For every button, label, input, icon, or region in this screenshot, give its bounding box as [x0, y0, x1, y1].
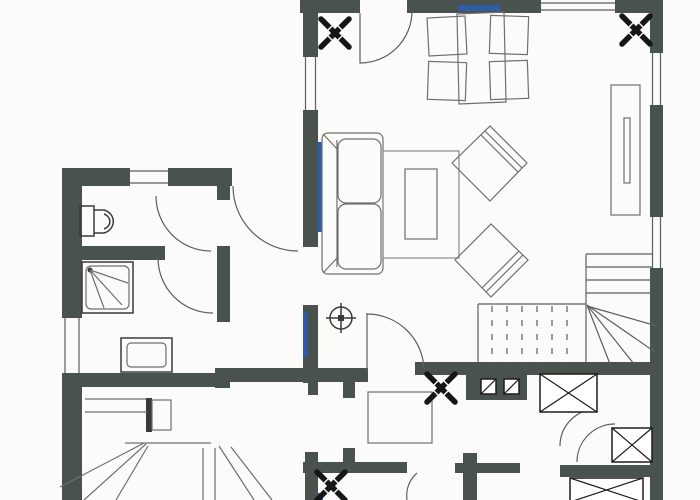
shower: [82, 262, 133, 313]
kitchen-door-arc: [560, 409, 597, 446]
entrance-door-arc: [233, 186, 298, 251]
wc-door-arc: [156, 196, 211, 251]
wall: [560, 465, 663, 477]
nightstand: [152, 400, 171, 430]
dining-set: [427, 12, 529, 104]
radiator-living-room: [318, 142, 323, 232]
small-x-box: [612, 428, 652, 462]
bathroom-door-arc: [158, 258, 213, 313]
radiator-hallway: [303, 312, 308, 358]
window-frame: [653, 53, 661, 105]
bedroom: [60, 398, 272, 500]
dining-chair: [427, 16, 467, 56]
wall: [82, 373, 217, 387]
wall: [217, 368, 368, 382]
window-frame: [306, 57, 316, 110]
bottom-right-cabinet: [570, 478, 643, 500]
staircase: [478, 254, 657, 364]
sofa: [322, 133, 383, 274]
rug-and-table: [383, 151, 459, 258]
dining-table: [457, 12, 506, 104]
wall: [303, 110, 318, 247]
bathtub: [121, 338, 172, 372]
wall: [343, 382, 355, 398]
floor-plan: [0, 0, 700, 500]
wall: [308, 382, 318, 395]
window-blue-top: [458, 5, 501, 11]
coffee-table: [405, 169, 437, 239]
wall: [62, 186, 82, 318]
kitchen-table: [368, 392, 432, 443]
sofa-cushion: [338, 139, 381, 203]
wall: [650, 105, 663, 217]
toilet: [80, 206, 113, 236]
wall: [217, 246, 230, 322]
rug: [383, 151, 459, 258]
cross-symbol: [321, 19, 349, 47]
kitchen: [368, 374, 652, 462]
ceiling-light-symbol: [326, 303, 356, 333]
window-frame: [130, 171, 168, 183]
sofa-cushion: [338, 204, 381, 269]
wall: [217, 186, 230, 200]
stair-winders: [587, 305, 657, 364]
kitchen-door-arc-2: [577, 424, 615, 462]
bottom-door-arc: [407, 473, 417, 500]
bed-fan-lines: [60, 399, 272, 500]
wall: [168, 168, 232, 186]
dining-chair: [427, 61, 466, 100]
wall: [305, 452, 318, 500]
cross-symbol: [622, 16, 650, 44]
dining-chair: [489, 15, 528, 54]
wall: [303, 0, 318, 57]
wall: [80, 246, 165, 260]
balcony-door-arc: [360, 11, 412, 63]
cross-symbol: [427, 374, 455, 402]
radiator-bar: [146, 398, 152, 432]
tall-cabinet-x-box: [540, 374, 597, 412]
stair-steps: [586, 267, 652, 293]
armchair-upper: [452, 126, 527, 201]
window-frame: [541, 3, 615, 10]
shower-spray-lines: [90, 270, 128, 308]
wall: [463, 453, 477, 500]
armchair-lower: [455, 224, 528, 297]
dining-chair: [489, 60, 528, 99]
sideboard: [611, 85, 640, 215]
cross-symbol: [317, 472, 345, 500]
window-frame: [65, 318, 79, 373]
wall: [62, 168, 130, 186]
window-frame: [653, 217, 661, 268]
wall: [343, 448, 355, 473]
floor-plan-svg: [0, 0, 700, 500]
